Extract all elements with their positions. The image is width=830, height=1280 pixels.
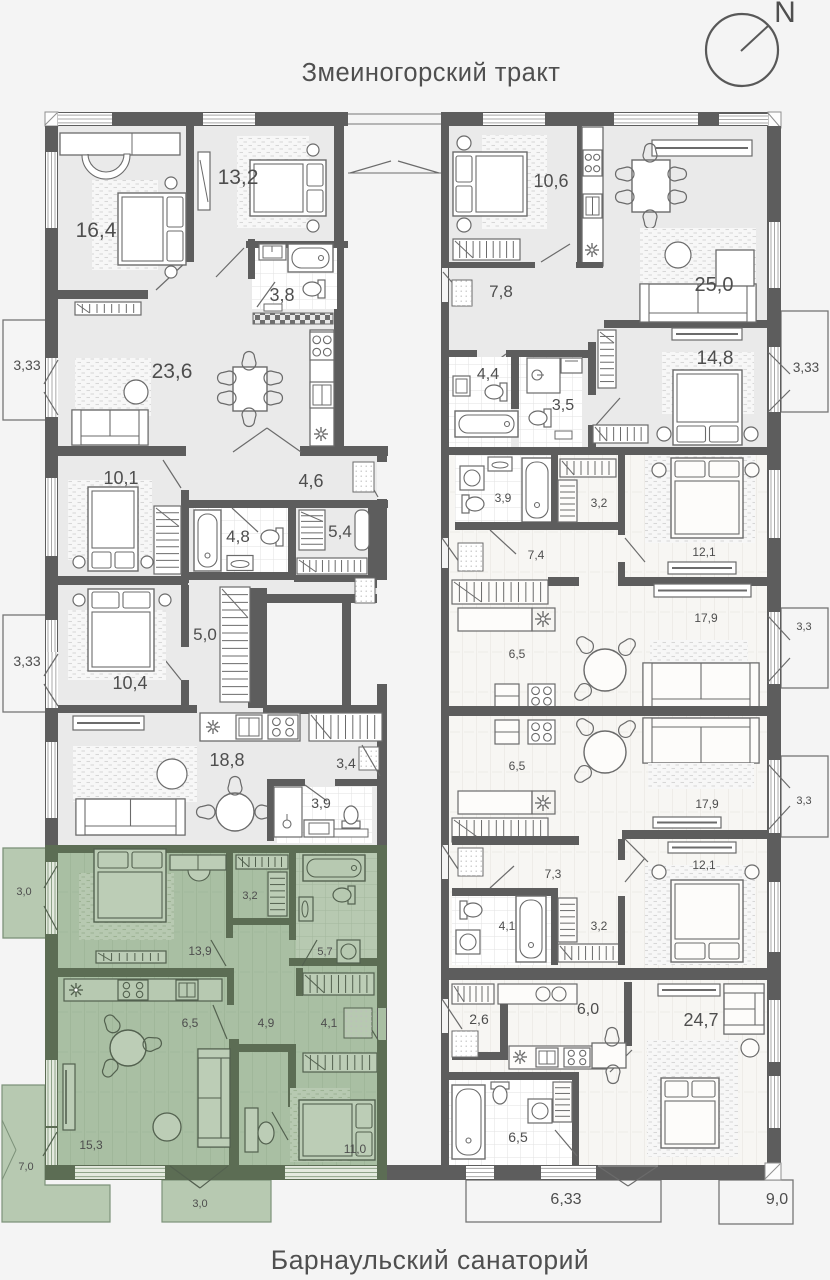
svg-text:3,3: 3,3 <box>796 621 811 633</box>
svg-text:3,4: 3,4 <box>336 755 356 771</box>
svg-text:17,9: 17,9 <box>694 611 718 625</box>
svg-text:Барнаульский санаторий: Барнаульский санаторий <box>271 1245 589 1275</box>
svg-text:5,0: 5,0 <box>193 625 217 644</box>
svg-text:3,2: 3,2 <box>242 890 257 902</box>
svg-text:17,9: 17,9 <box>695 797 719 811</box>
svg-text:5,7: 5,7 <box>317 946 332 958</box>
svg-text:4,8: 4,8 <box>226 527 250 546</box>
svg-text:10,6: 10,6 <box>533 171 568 191</box>
svg-text:16,4: 16,4 <box>76 219 117 242</box>
svg-text:5,4: 5,4 <box>328 522 352 541</box>
svg-text:3,8: 3,8 <box>269 285 294 305</box>
svg-text:3,0: 3,0 <box>192 1198 207 1210</box>
svg-text:3,2: 3,2 <box>591 496 608 510</box>
svg-text:12,1: 12,1 <box>692 858 716 872</box>
svg-text:6,5: 6,5 <box>509 647 526 661</box>
svg-text:7,8: 7,8 <box>489 282 513 301</box>
svg-text:3,9: 3,9 <box>495 491 512 505</box>
svg-text:10,4: 10,4 <box>112 673 147 693</box>
svg-text:10,1: 10,1 <box>103 468 138 488</box>
svg-text:3,33: 3,33 <box>13 653 40 669</box>
svg-text:18,8: 18,8 <box>209 750 244 770</box>
svg-text:N: N <box>774 0 796 29</box>
svg-text:4,9: 4,9 <box>258 1016 275 1030</box>
svg-text:Змеиногорский тракт: Змеиногорский тракт <box>302 59 561 87</box>
svg-text:9,0: 9,0 <box>766 1191 788 1208</box>
svg-text:6,5: 6,5 <box>509 759 526 773</box>
svg-text:6,5: 6,5 <box>182 1016 199 1030</box>
svg-text:23,6: 23,6 <box>152 360 193 383</box>
svg-text:12,1: 12,1 <box>692 545 716 559</box>
svg-text:3,3: 3,3 <box>796 795 811 807</box>
svg-text:4,6: 4,6 <box>298 471 323 491</box>
svg-text:3,0: 3,0 <box>16 886 31 898</box>
svg-text:13,9: 13,9 <box>188 944 212 958</box>
svg-text:7,3: 7,3 <box>545 867 562 881</box>
svg-text:24,7: 24,7 <box>683 1010 718 1030</box>
svg-text:6,0: 6,0 <box>577 1001 599 1018</box>
svg-text:14,8: 14,8 <box>697 348 734 369</box>
svg-text:3,5: 3,5 <box>552 397 574 414</box>
svg-text:3,33: 3,33 <box>793 360 819 375</box>
svg-text:4,4: 4,4 <box>477 366 499 383</box>
svg-text:11,0: 11,0 <box>344 1142 367 1156</box>
svg-text:2,6: 2,6 <box>469 1011 489 1027</box>
svg-text:7,0: 7,0 <box>18 1161 33 1173</box>
svg-text:15,3: 15,3 <box>79 1138 103 1152</box>
svg-text:13,2: 13,2 <box>218 166 259 189</box>
svg-text:4,1: 4,1 <box>499 919 516 933</box>
svg-text:4,1: 4,1 <box>321 1016 338 1030</box>
svg-text:6,5: 6,5 <box>508 1129 528 1145</box>
svg-text:3,33: 3,33 <box>13 357 40 373</box>
svg-text:3,2: 3,2 <box>591 919 608 933</box>
svg-text:6,33: 6,33 <box>550 1191 581 1208</box>
svg-text:7,4: 7,4 <box>528 548 545 562</box>
svg-text:25,0: 25,0 <box>695 274 734 296</box>
svg-text:3,9: 3,9 <box>311 795 331 811</box>
